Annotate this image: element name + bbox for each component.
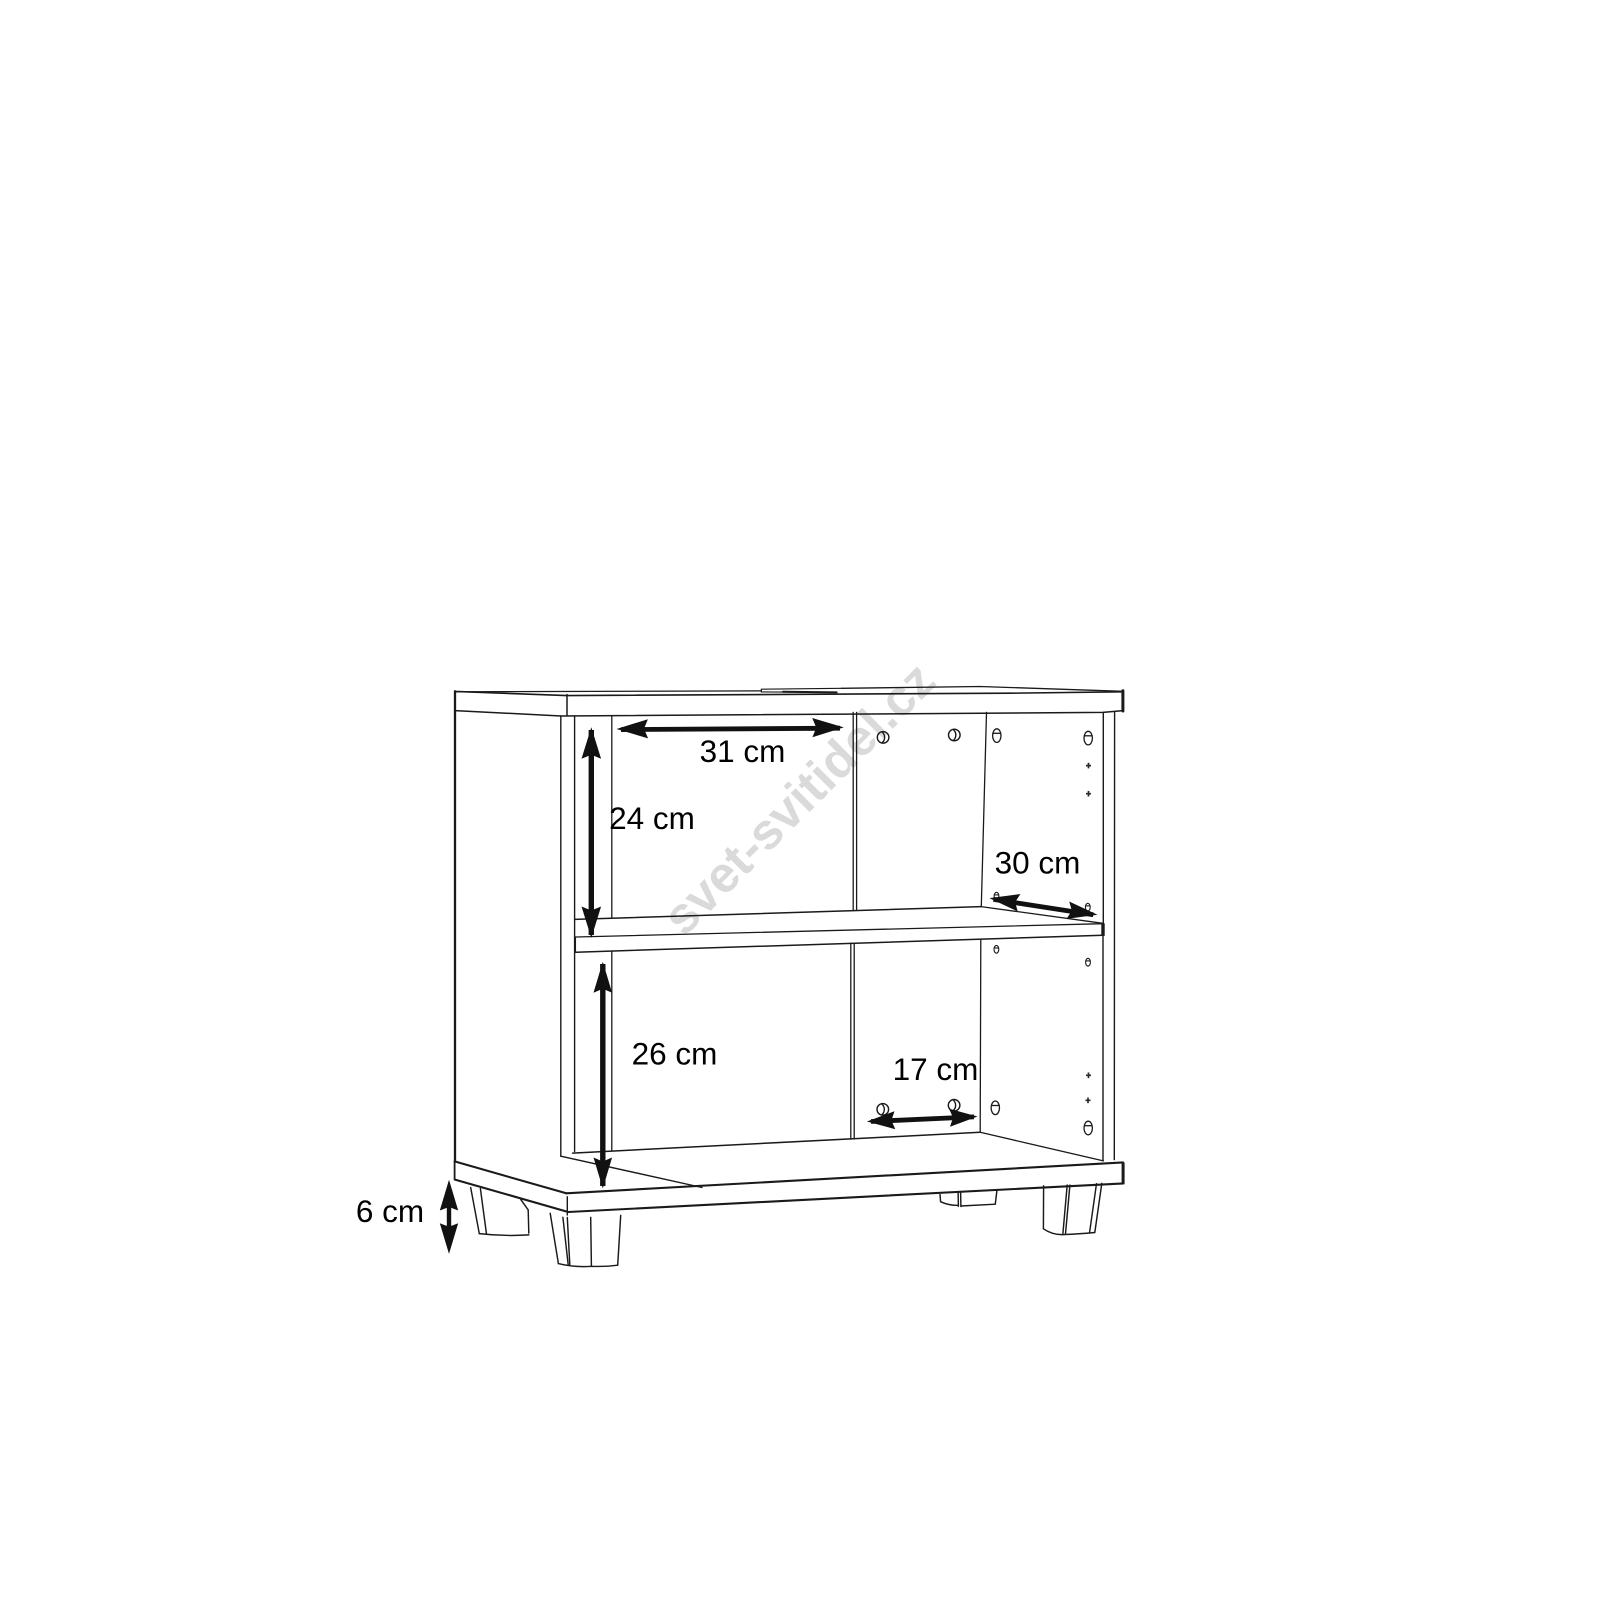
svg-text:31 cm: 31 cm bbox=[700, 733, 786, 769]
svg-text:6 cm: 6 cm bbox=[356, 1193, 424, 1229]
svg-text:17 cm: 17 cm bbox=[893, 1051, 979, 1087]
svg-text:30 cm: 30 cm bbox=[995, 845, 1081, 881]
svg-text:24 cm: 24 cm bbox=[609, 800, 695, 836]
svg-text:26 cm: 26 cm bbox=[632, 1036, 718, 1072]
